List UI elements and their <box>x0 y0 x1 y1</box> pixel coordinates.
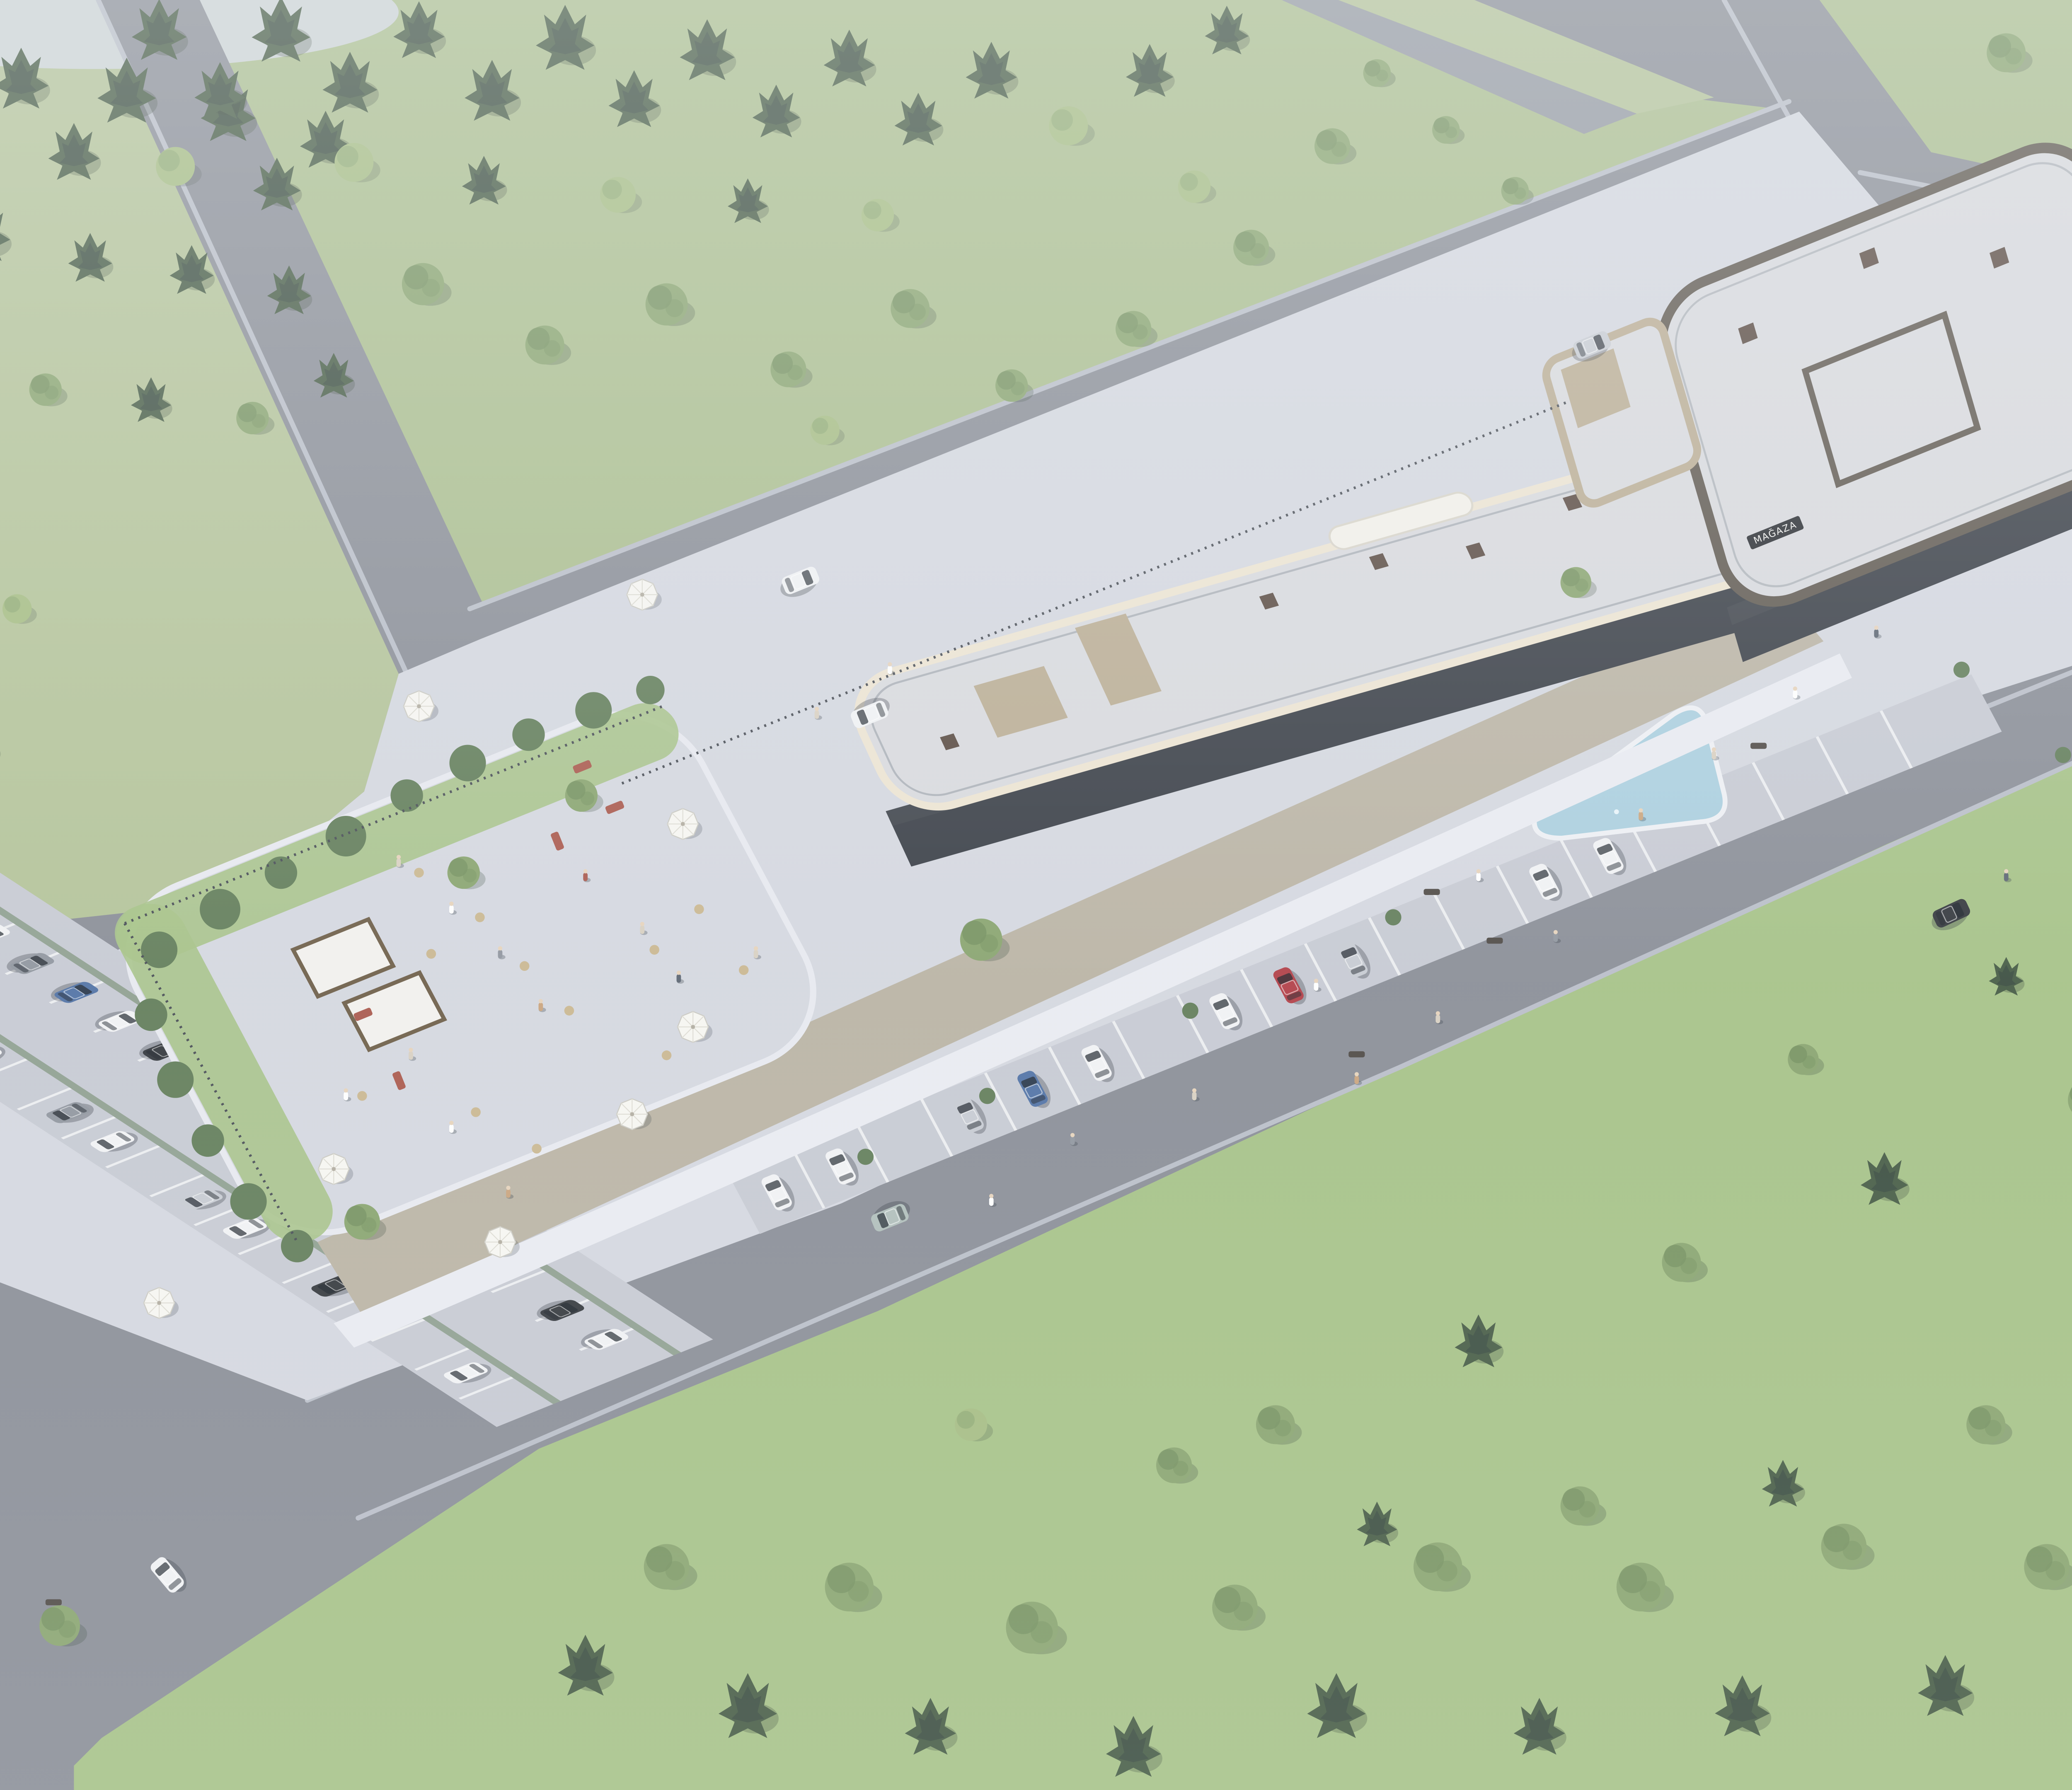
scene-canvas: Aerial visualization — two-storey retail… <box>0 0 2072 1790</box>
aerial-render: Aerial visualization — two-storey retail… <box>0 0 2072 1790</box>
haze-overlay <box>0 0 2072 1790</box>
